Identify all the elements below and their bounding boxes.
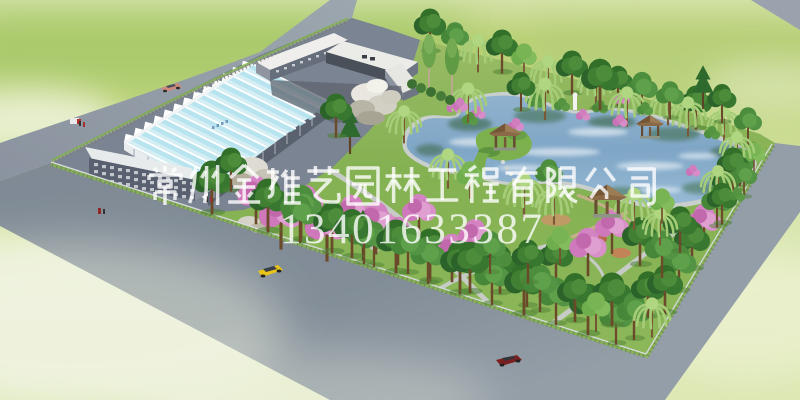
svg-text:13401633387: 13401633387 [280, 206, 542, 253]
